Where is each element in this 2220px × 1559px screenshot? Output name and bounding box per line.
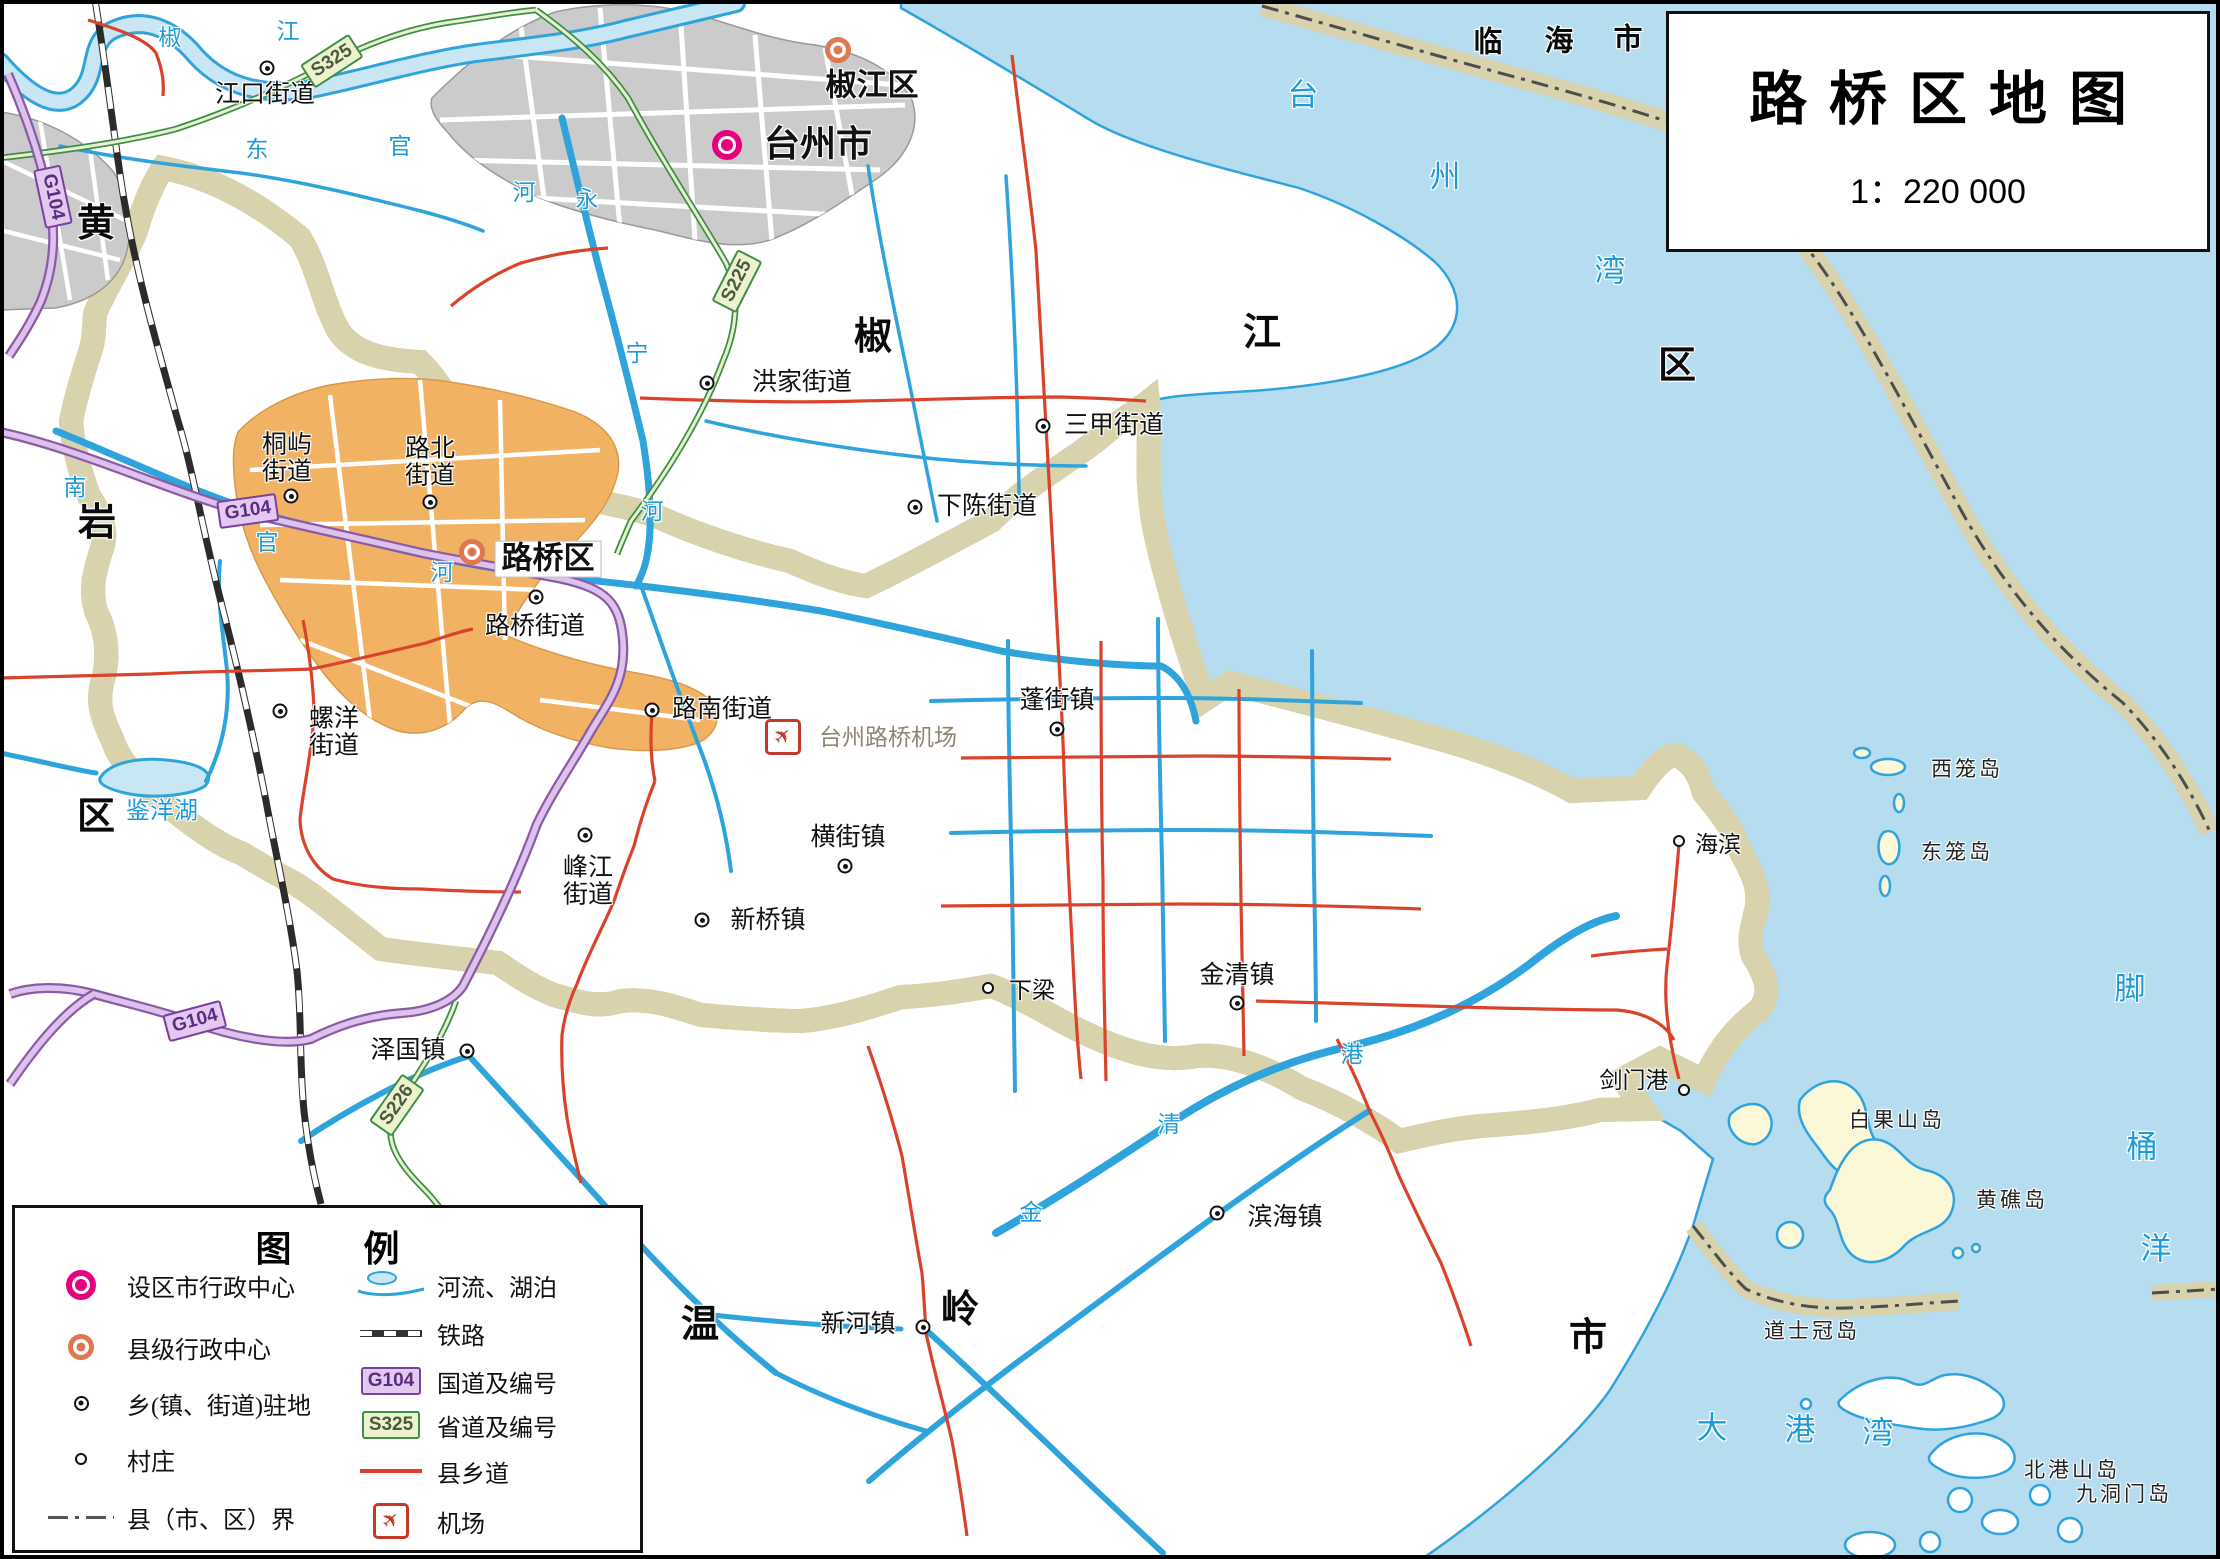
map-label-town: 洪家街道: [752, 370, 852, 397]
map-label-village: 海滨: [1695, 833, 1741, 857]
map-label-bigdist: 岭: [941, 1290, 979, 1330]
map-label-river: 官: [256, 531, 279, 555]
legend-label: 乡(镇、街道)驻地: [127, 1386, 311, 1421]
map-label-river: 江: [277, 20, 300, 44]
title-box: 路桥区地图 1：220 000: [1666, 11, 2210, 252]
map-scale: 1：220 000: [1669, 164, 2207, 213]
map-label-island: 黄礁岛: [1976, 1189, 2048, 1211]
map-label-river: 清: [1158, 1113, 1181, 1137]
legend-label: 村庄: [127, 1442, 175, 1477]
map-label-town: 新桥镇: [730, 908, 805, 935]
map-label-bigdist: 江: [1243, 313, 1281, 353]
legend-label: 铁路: [437, 1316, 485, 1351]
county-marker: [825, 37, 851, 63]
map-label-bigdist: 温: [681, 1305, 719, 1345]
map-label-sea: 湾: [1595, 256, 1626, 289]
legend-label: 县乡道: [437, 1454, 509, 1489]
map-label-river: 宁: [626, 342, 649, 366]
town-marker: [423, 495, 438, 510]
map-label-river: 官: [389, 135, 412, 159]
map-label-city: 台州市: [764, 125, 872, 163]
map-label-bigdist: 区: [77, 797, 115, 837]
legend-row-village: 村庄: [35, 1442, 175, 1476]
legend-row-river: 河流、湖泊: [345, 1268, 557, 1302]
map-title: 路桥区地图: [1669, 52, 2207, 136]
town-marker: [1036, 419, 1051, 434]
town-marker: [260, 61, 275, 76]
road-shield-G104: G104: [216, 493, 280, 529]
map-label-county: 椒江区: [826, 70, 919, 103]
map-label-river: 南: [64, 476, 87, 500]
town-marker: [838, 859, 853, 874]
map-label-town: 泽国镇: [370, 1038, 445, 1065]
legend-row-national: G104 国道及编号: [345, 1364, 557, 1398]
map-label-sea: 台: [1288, 80, 1319, 113]
county-marker: [459, 539, 485, 565]
map-label-bigdist: 岩: [78, 503, 116, 543]
legend-label: 设区市行政中心: [127, 1268, 295, 1303]
legend-label: 河流、湖泊: [437, 1268, 557, 1303]
map-label-river: 金: [1020, 1201, 1043, 1225]
road-shield-S225: S225: [711, 249, 762, 314]
legend-label: 县（市、区）界: [127, 1500, 295, 1535]
road-shield-S325: S325: [300, 33, 364, 88]
map-label-island: 九洞门岛: [2076, 1483, 2172, 1505]
map-label-bigdist: 黄: [77, 204, 115, 244]
map-label-bigdist: 区: [1658, 346, 1696, 386]
legend-row-city: 设区市行政中心: [35, 1268, 295, 1302]
town-marker: [1050, 722, 1065, 737]
map-label-town: 新河镇: [820, 1312, 895, 1339]
map-label-sea: 港: [1785, 1415, 1816, 1448]
map-label-town: 金清镇: [1199, 963, 1274, 990]
map-label-sea: 大: [1697, 1413, 1728, 1446]
map-label-town: 峰江 街道: [563, 856, 613, 909]
village-marker-icon: [35, 1453, 127, 1465]
map-label-neighbor: 临: [1473, 28, 1502, 59]
town-marker: [1210, 1206, 1225, 1221]
map-label-river: 河: [641, 500, 664, 524]
map-label-sea: 洋: [2141, 1234, 2172, 1267]
map-label-island: 东笼岛: [1921, 841, 1993, 863]
map-label-village: 下梁: [1009, 979, 1055, 1003]
map-label-town: 螺洋 街道: [309, 707, 359, 760]
national-road-icon: G104: [345, 1367, 437, 1395]
village-marker: [982, 982, 994, 994]
map-label-neighbor: 市: [1613, 25, 1642, 56]
map-label-town: 蓬街镇: [1019, 688, 1094, 715]
railway-icon: [345, 1330, 437, 1337]
map-page: 台州市椒江区路桥区江口街道洪家街道三甲街道下陈街道桐屿 街道路北 街道路桥街道路…: [0, 0, 2220, 1559]
map-label-neighbor: 海: [1544, 27, 1573, 58]
map-label-island: 道士冠岛: [1764, 1320, 1860, 1342]
legend-title: 图 例: [15, 1220, 640, 1272]
map-label-town: 横街镇: [810, 825, 885, 852]
legend-row-railway: 铁路: [345, 1316, 485, 1350]
legend-row-airport: ✈ 机场: [345, 1504, 485, 1538]
river-lake-icon: [345, 1269, 437, 1301]
legend-row-countyroad: 县乡道: [345, 1454, 509, 1488]
map-label-sea: 脚: [2115, 974, 2146, 1007]
map-label-sea: 桶: [2127, 1132, 2158, 1165]
legend-label: 国道及编号: [437, 1364, 557, 1399]
map-label-river: 河: [431, 561, 454, 585]
map-label-bigdist: 椒: [854, 317, 892, 357]
map-label-town: 下陈街道: [937, 494, 1037, 521]
city-marker-icon: [35, 1270, 127, 1300]
town-marker: [645, 703, 660, 718]
legend-row-county: 县级行政中心: [35, 1330, 271, 1364]
road-shield-G104: G104: [162, 1000, 228, 1043]
map-label-river: 东: [246, 138, 269, 162]
legend-label: 机场: [437, 1504, 485, 1539]
map-label-district-seat: 路桥区: [495, 541, 602, 578]
town-marker: [1230, 996, 1245, 1011]
map-label-lake: 鉴洋湖: [126, 799, 198, 824]
legend-row-provincial: S325 省道及编号: [345, 1408, 557, 1442]
map-label-village: 剑门港: [1600, 1069, 1669, 1093]
map-label-town: 江口街道: [215, 82, 315, 109]
provincial-road-icon: S325: [345, 1411, 437, 1439]
town-marker: [284, 489, 299, 504]
county-marker-icon: [35, 1334, 127, 1360]
map-label-sea: 州: [1430, 162, 1461, 195]
map-label-river: 椒: [159, 26, 182, 50]
map-label-river: 永: [576, 188, 599, 212]
map-label-town: 滨海镇: [1247, 1205, 1322, 1232]
road-shield-S226: S226: [369, 1073, 425, 1137]
city-marker: [712, 130, 742, 160]
legend-label: 省道及编号: [437, 1408, 557, 1443]
town-marker: [908, 500, 923, 515]
legend-row-boundary: 县（市、区）界: [35, 1500, 295, 1534]
legend-label: 县级行政中心: [127, 1330, 271, 1365]
village-marker: [1673, 835, 1685, 847]
legend-box: 图 例 设区市行政中心 县级行政中心 乡(镇、街道)驻地 村庄 县（市、区）界: [12, 1205, 643, 1553]
town-marker: [695, 913, 710, 928]
town-marker: [578, 828, 593, 843]
town-marker: [273, 704, 288, 719]
map-label-town: 路北 街道: [405, 437, 455, 490]
map-label-island: 北港山岛: [2024, 1459, 2120, 1481]
town-marker: [529, 590, 544, 605]
map-label-town: 路桥街道: [485, 614, 585, 641]
town-marker: [700, 376, 715, 391]
airport-icon: ✈: [765, 719, 801, 755]
map-label-island: 白果山岛: [1849, 1109, 1945, 1131]
boundary-line-icon: [35, 1516, 127, 1519]
airport-icon: ✈: [345, 1503, 437, 1539]
map-label-airport-name: 台州路桥机场: [819, 726, 957, 750]
county-road-icon: [345, 1469, 437, 1473]
legend-row-town: 乡(镇、街道)驻地: [35, 1386, 311, 1420]
map-label-town: 三甲街道: [1064, 413, 1164, 440]
map-label-town: 路南街道: [672, 697, 772, 724]
town-marker-icon: [35, 1396, 127, 1411]
map-label-bigdist: 市: [1569, 1318, 1607, 1358]
map-label-river: 河: [513, 181, 536, 205]
road-shield-G104: G104: [33, 165, 73, 230]
map-label-river: 港: [1341, 1043, 1364, 1067]
town-marker: [916, 1320, 931, 1335]
town-marker: [460, 1044, 475, 1059]
map-label-sea: 湾: [1863, 1418, 1894, 1451]
map-label-island: 西笼岛: [1931, 758, 2003, 780]
map-label-town: 桐屿 街道: [262, 433, 312, 486]
village-marker: [1678, 1084, 1690, 1096]
